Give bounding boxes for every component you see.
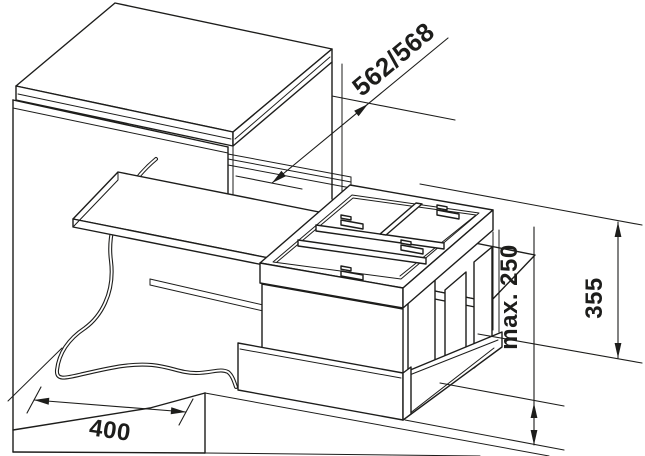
extension-line <box>440 383 564 406</box>
arrowhead-icon <box>615 343 622 358</box>
arrowhead-icon <box>34 398 49 405</box>
dimension-label-max-front-height: max. 250 <box>496 244 523 349</box>
worktop-top-face <box>16 3 332 132</box>
arrowhead-icon <box>615 222 622 237</box>
dimension-width: 400 <box>27 387 193 447</box>
dimension-label-depth: 562/568 <box>346 16 440 102</box>
extension-line <box>332 96 455 120</box>
cabinet-bottom-edge <box>13 452 205 453</box>
arrowhead-icon <box>171 407 186 414</box>
extension-line <box>405 420 564 450</box>
dimension-label-width: 400 <box>88 414 133 447</box>
arrowhead-icon <box>531 430 538 445</box>
dimension-line <box>34 400 186 412</box>
floor-back-edge <box>8 348 62 401</box>
technical-drawing-page: 562/568 355 max. 250 400 <box>0 0 645 456</box>
arrowhead-icon <box>354 104 368 116</box>
extension-line <box>236 176 302 189</box>
arrowhead-icon <box>531 403 538 418</box>
front-band-return <box>403 367 411 420</box>
worktop <box>16 3 332 146</box>
dimension-label-system-height: 355 <box>581 277 608 319</box>
cabinet-pullout-waste-bin-drawing: 562/568 355 max. 250 400 <box>0 0 645 456</box>
